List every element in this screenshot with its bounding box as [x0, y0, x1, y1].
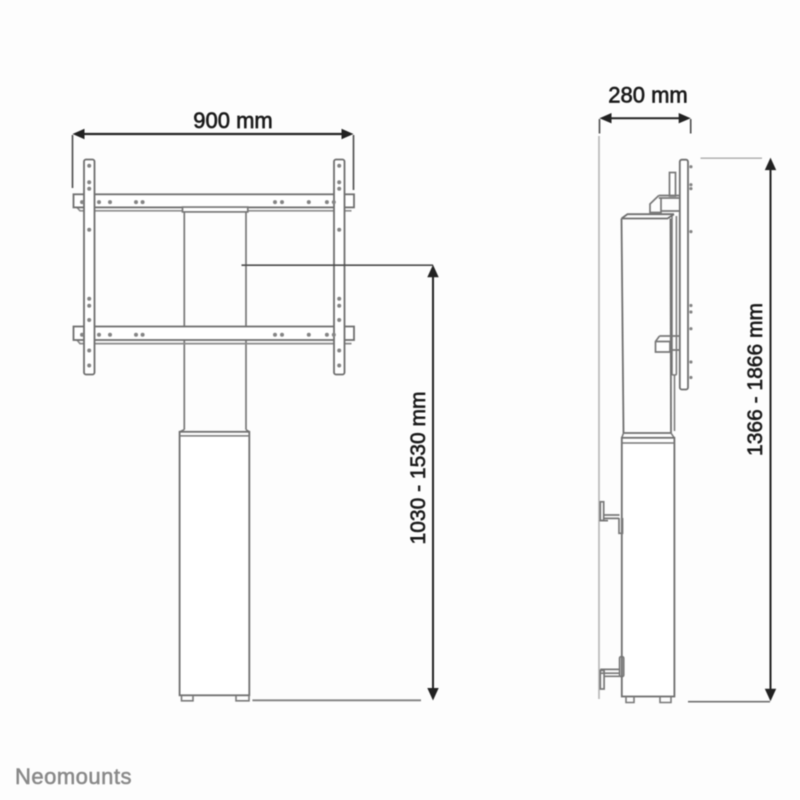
svg-text:280 mm: 280 mm	[608, 83, 687, 108]
svg-text:1366 - 1866 mm: 1366 - 1866 mm	[744, 303, 767, 456]
svg-text:Neomounts: Neomounts	[15, 764, 132, 789]
svg-text:1030 - 1530 mm: 1030 - 1530 mm	[407, 392, 430, 545]
svg-text:900 mm: 900 mm	[193, 108, 272, 133]
